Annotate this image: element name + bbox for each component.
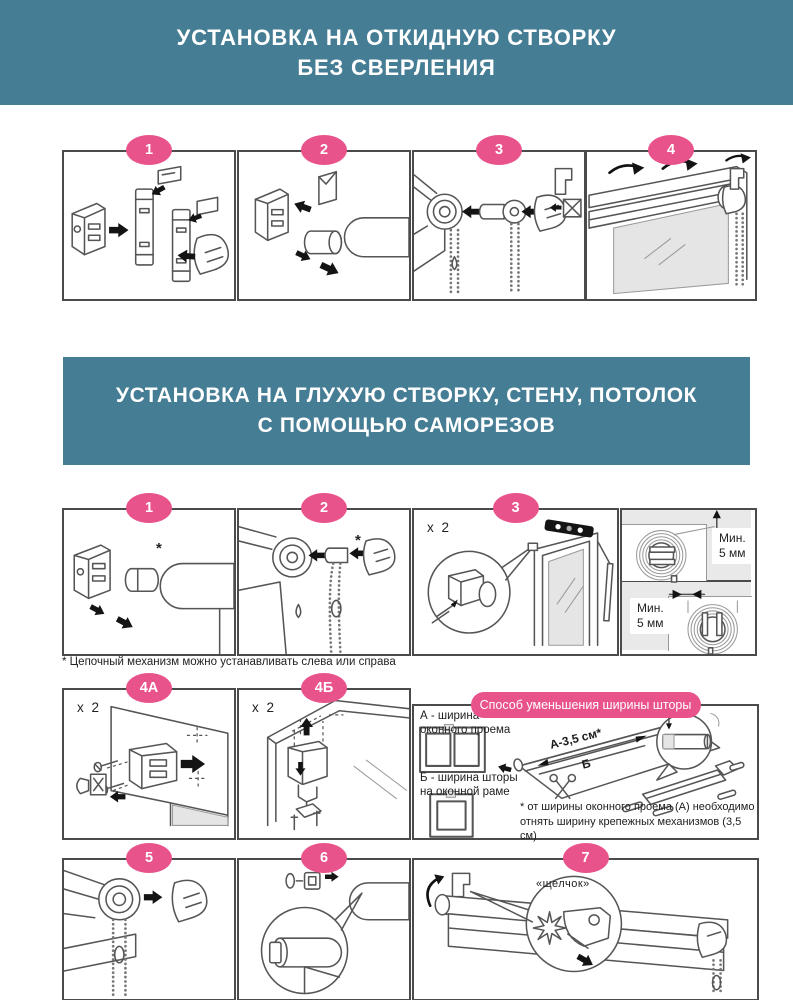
- section2-step4a-box: 4А x 2: [62, 688, 236, 840]
- section1-banner: УСТАНОВКА НА ОТКИДНУЮ СТВОРКУ БЕЗ СВЕРЛЕ…: [0, 0, 793, 105]
- chain-side-note-asterisk: *: [156, 540, 162, 557]
- quantity-label: x 2: [427, 520, 451, 535]
- width-reduction-footnote: * от ширины оконного проема (А) необходи…: [520, 800, 757, 844]
- chain-side-note-asterisk: *: [355, 532, 361, 549]
- chain-mechanism-footnote: * Цепочный механизм можно устанавливать …: [62, 656, 396, 668]
- section2-step2-box: 2 *: [237, 508, 411, 656]
- bracket-tape-tube-illustration: [239, 152, 409, 299]
- width-reduction-box: Способ уменьшения ширины шторы: [412, 704, 759, 840]
- section2-step2-badge: 2: [301, 493, 347, 523]
- section2-step4a-badge: 4А: [126, 673, 172, 703]
- bracket-pin-tube-illustration: [64, 510, 234, 654]
- section1-step1-badge: 1: [126, 135, 172, 165]
- width-b-definition: Б - ширина шторы на оконной раме: [420, 772, 518, 799]
- section2-banner: УСТАНОВКА НА ГЛУХУЮ СТВОРКУ, СТЕНУ, ПОТО…: [63, 357, 750, 465]
- section2-step7-box: 7 «щелчок»: [412, 858, 759, 1000]
- section1-title-line1: УСТАНОВКА НА ОТКИДНУЮ СТВОРКУ: [177, 23, 617, 53]
- section2-step4b-box: 4Б x 2: [237, 688, 411, 840]
- section1-title-line2: БЕЗ СВЕРЛЕНИЯ: [297, 53, 495, 83]
- section1-step4-badge: 4: [648, 135, 694, 165]
- section2-step3-box: 3 x 2: [412, 508, 619, 656]
- installation-instruction-sheet: УСТАНОВКА НА ОТКИДНУЮ СТВОРКУ БЕЗ СВЕРЛЕ…: [0, 0, 793, 1000]
- width-reduction-title-pill: Способ уменьшения ширины шторы: [471, 692, 701, 718]
- blind-on-sash-illustration: [587, 152, 755, 299]
- clearance-diagram-box: Мин. 5 мм Мин. 5 мм: [620, 508, 757, 656]
- section2-step1-box: 1 *: [62, 508, 236, 656]
- section2-step7-badge: 7: [563, 843, 609, 873]
- section2-step4b-badge: 4Б: [301, 673, 347, 703]
- tube-end-detail-illustration: [239, 860, 409, 999]
- section2-step5-box: 5: [62, 858, 236, 1000]
- section2-title-line2: С ПОМОЩЬЮ САМОРЕЗОВ: [258, 411, 556, 441]
- clearance-side-label: Мин. 5 мм: [630, 598, 671, 634]
- section1-step2-box: 2: [237, 150, 411, 301]
- section2-step6-box: 6: [237, 858, 411, 1000]
- click-sound-label: «щелчок»: [536, 878, 590, 890]
- section1-step3-badge: 3: [476, 135, 522, 165]
- section1-step4-box: 4: [585, 150, 757, 301]
- section1-step2-badge: 2: [301, 135, 347, 165]
- section1-step3-box: 3: [412, 150, 586, 301]
- section1-step1-box: 1: [62, 150, 236, 301]
- roller-pin-cap-illustration: [414, 152, 584, 299]
- roller-chain-cap-illustration: [239, 510, 409, 654]
- section2-step3-badge: 3: [493, 493, 539, 523]
- section2-step6-badge: 6: [301, 843, 347, 873]
- section2-title-line1: УСТАНОВКА НА ГЛУХУЮ СТВОРКУ, СТЕНУ, ПОТО…: [116, 381, 697, 411]
- section2-step1-badge: 1: [126, 493, 172, 523]
- section2-step5-badge: 5: [126, 843, 172, 873]
- clamp-assembly-illustration: [64, 152, 234, 299]
- quantity-label: x 2: [252, 700, 276, 715]
- clearance-top-label: Мин. 5 мм: [712, 528, 753, 564]
- roller-cap-attach-illustration: [64, 860, 234, 999]
- quantity-label: x 2: [77, 700, 101, 715]
